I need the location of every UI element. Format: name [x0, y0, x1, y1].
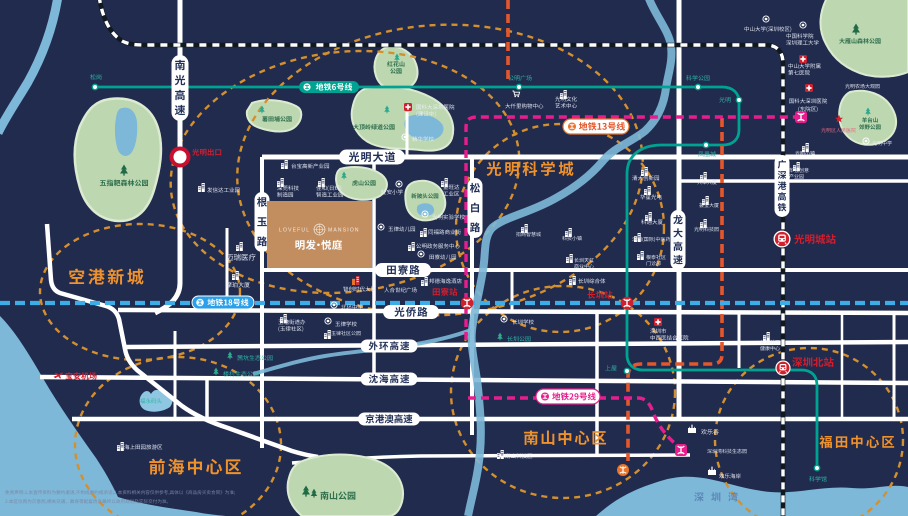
- svg-text:LOVEFUL: LOVEFUL: [279, 228, 310, 234]
- svg-text:MANSION: MANSION: [328, 228, 360, 234]
